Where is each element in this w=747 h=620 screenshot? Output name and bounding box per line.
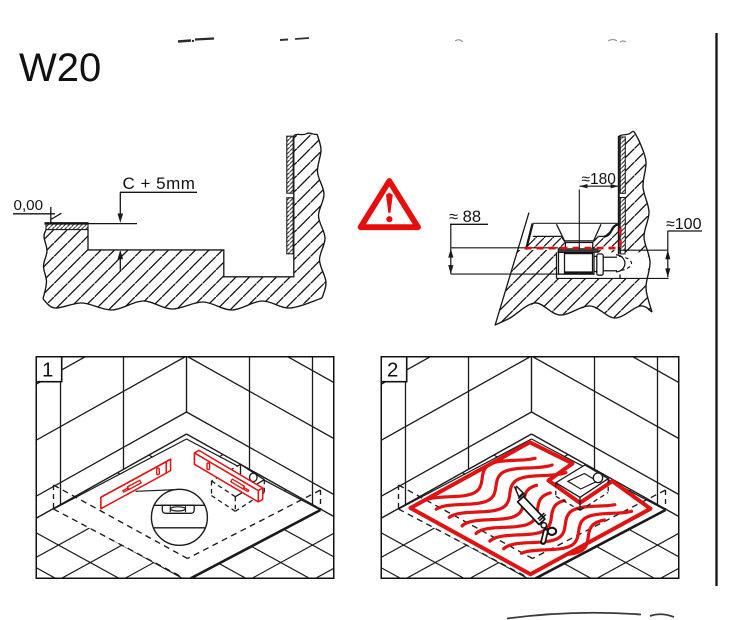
svg-text:W20: W20 [19,46,101,90]
svg-text:1: 1 [42,359,53,382]
svg-text:0,00: 0,00 [14,197,44,214]
svg-text:C + 5mm: C + 5mm [123,174,196,193]
svg-text:≈ 88: ≈ 88 [449,208,481,226]
svg-text:2: 2 [387,359,398,382]
